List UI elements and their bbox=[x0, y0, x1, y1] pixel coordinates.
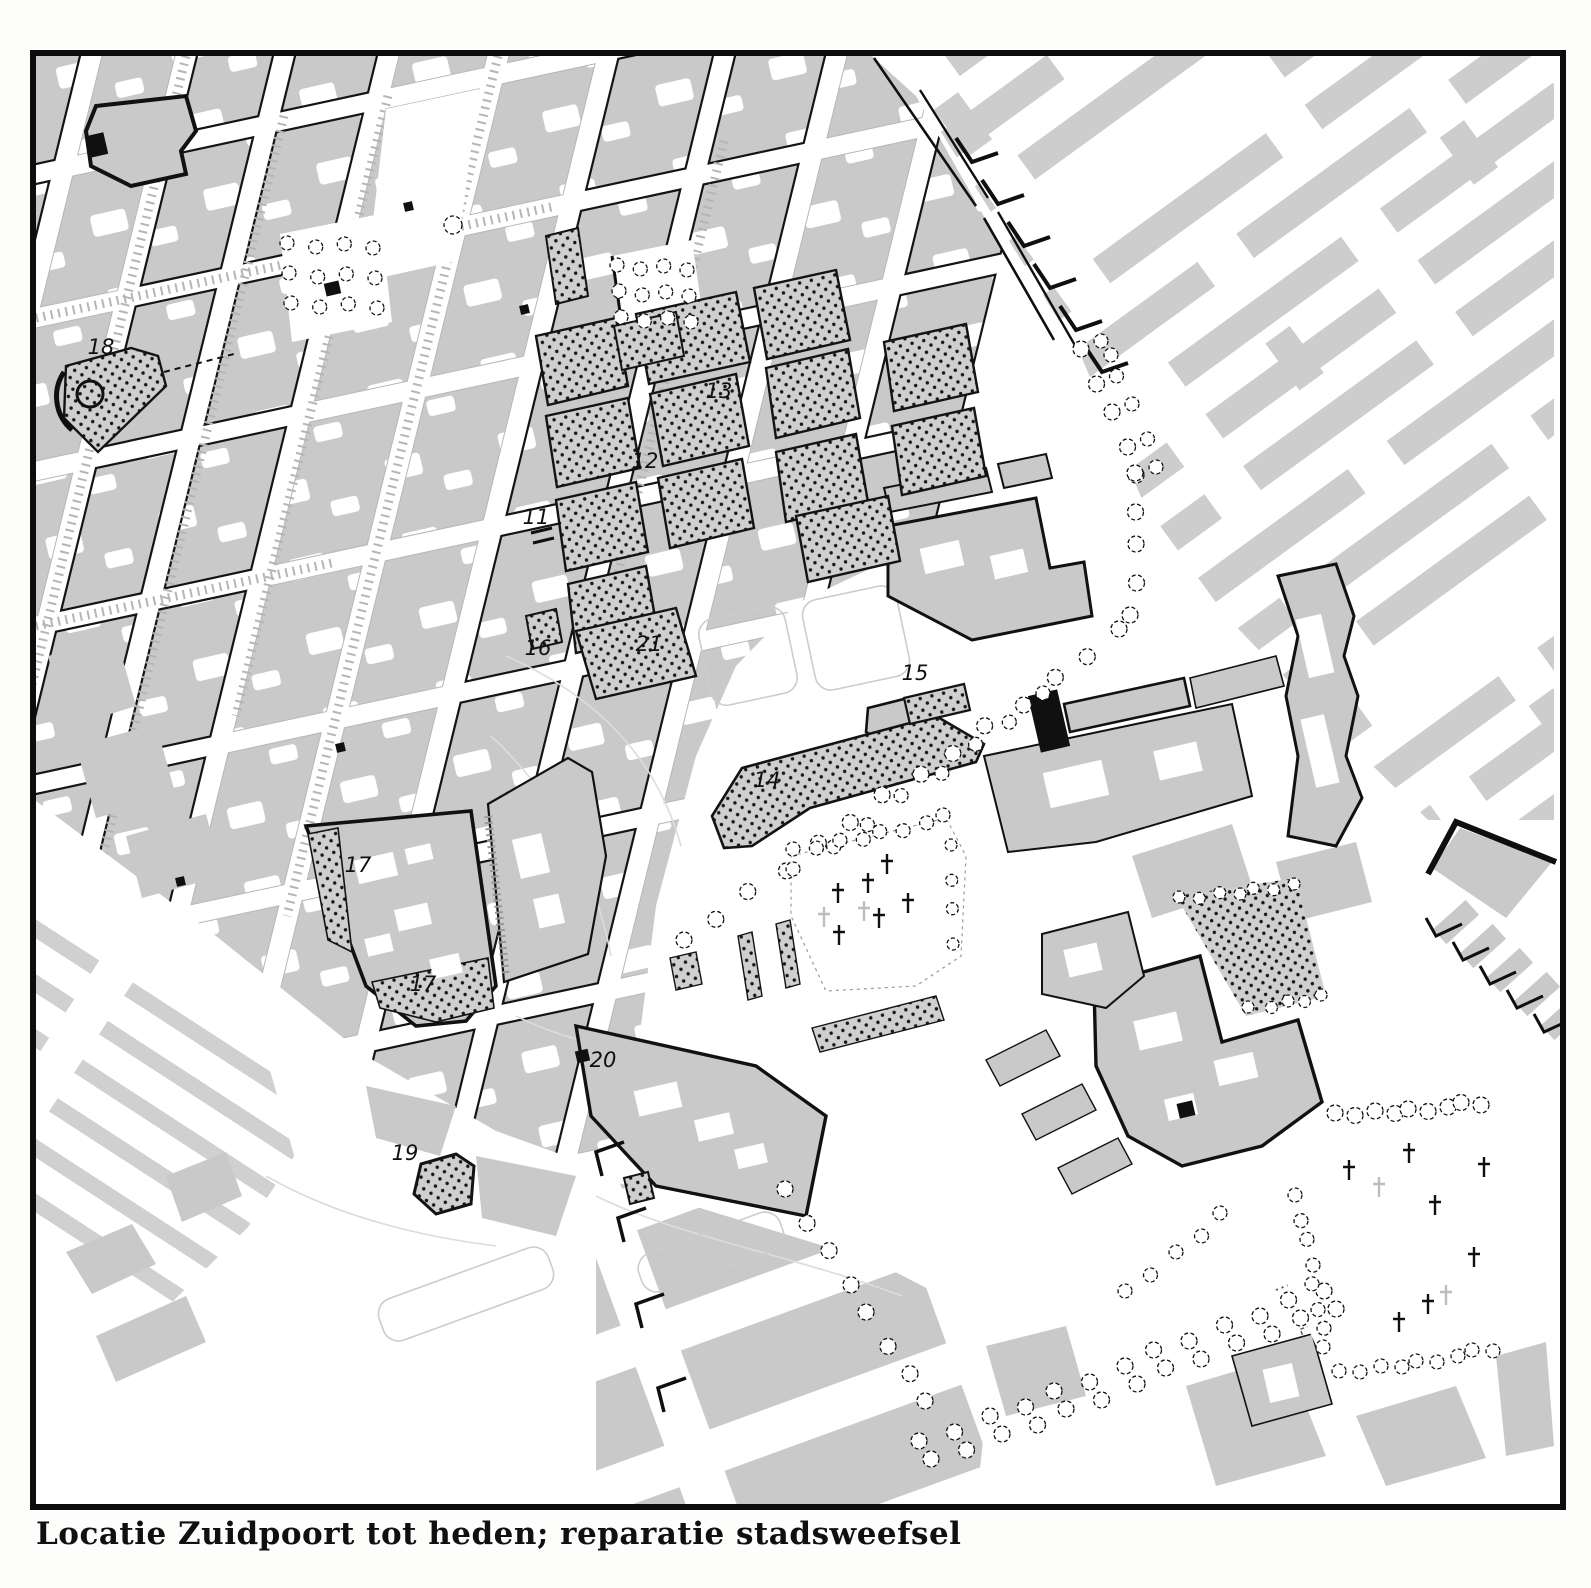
tree bbox=[945, 839, 957, 851]
tree bbox=[1453, 1095, 1469, 1111]
tree bbox=[786, 842, 800, 856]
tree bbox=[856, 832, 870, 846]
tree bbox=[1281, 1292, 1297, 1308]
building bbox=[1496, 1342, 1554, 1456]
tree bbox=[860, 818, 874, 832]
tree bbox=[1117, 1358, 1133, 1374]
tree bbox=[1217, 1317, 1233, 1333]
complex bbox=[1278, 564, 1362, 846]
tree bbox=[1129, 1376, 1145, 1392]
tree bbox=[1473, 1097, 1489, 1113]
tree bbox=[1264, 1326, 1280, 1342]
tree bbox=[1229, 1335, 1245, 1351]
tree bbox=[1420, 1104, 1436, 1120]
tree bbox=[920, 816, 934, 830]
tree bbox=[311, 270, 325, 284]
tree bbox=[633, 262, 647, 276]
tree bbox=[947, 1424, 963, 1440]
tree bbox=[994, 1426, 1010, 1442]
tree bbox=[1252, 1308, 1268, 1324]
tree bbox=[313, 300, 327, 314]
tree bbox=[337, 237, 351, 251]
tree bbox=[740, 884, 756, 900]
tree bbox=[676, 932, 692, 948]
tree bbox=[1122, 607, 1138, 623]
map-number-label: 13 bbox=[706, 379, 733, 403]
tree bbox=[1104, 348, 1118, 362]
tree bbox=[799, 1215, 815, 1231]
map-number-label: 19 bbox=[392, 1141, 419, 1165]
tree bbox=[1305, 1277, 1319, 1291]
tree bbox=[1234, 888, 1246, 900]
tree bbox=[1046, 1383, 1062, 1399]
tree bbox=[1002, 715, 1016, 729]
tree bbox=[1193, 1351, 1209, 1367]
tree bbox=[341, 297, 355, 311]
tree bbox=[1300, 1232, 1314, 1246]
tree bbox=[936, 808, 950, 822]
tree bbox=[661, 311, 675, 325]
tree bbox=[1144, 1268, 1158, 1282]
tree bbox=[1149, 460, 1163, 474]
tree bbox=[1213, 1206, 1227, 1220]
tree bbox=[1465, 1343, 1479, 1357]
tree bbox=[1181, 1333, 1197, 1349]
tree bbox=[969, 737, 983, 751]
tree bbox=[1110, 369, 1124, 383]
tree bbox=[1409, 1354, 1423, 1368]
tree bbox=[1047, 669, 1063, 685]
tree bbox=[1282, 995, 1294, 1007]
tree bbox=[1073, 341, 1089, 357]
tree bbox=[1293, 1310, 1309, 1326]
tree bbox=[946, 874, 958, 886]
tree bbox=[282, 266, 296, 280]
tree bbox=[1247, 882, 1259, 894]
tree bbox=[284, 296, 298, 310]
tree bbox=[1127, 465, 1143, 481]
tree bbox=[947, 938, 959, 950]
tree bbox=[946, 903, 958, 915]
tree bbox=[309, 240, 323, 254]
tree bbox=[1347, 1108, 1363, 1124]
tree bbox=[1374, 1359, 1388, 1373]
tree bbox=[339, 267, 353, 281]
tree bbox=[894, 789, 908, 803]
tree bbox=[935, 766, 949, 780]
tree bbox=[1128, 536, 1144, 552]
tree bbox=[1395, 1360, 1409, 1374]
map-number-label: 17 bbox=[345, 853, 372, 877]
tree bbox=[1242, 1001, 1254, 1013]
tree bbox=[874, 787, 890, 803]
tree bbox=[610, 258, 624, 272]
tree bbox=[945, 746, 961, 762]
tree bbox=[682, 289, 696, 303]
tree bbox=[1306, 1258, 1320, 1272]
tree bbox=[1016, 697, 1032, 713]
tree bbox=[657, 259, 671, 273]
tree bbox=[1451, 1349, 1465, 1363]
tree bbox=[786, 862, 800, 876]
tree bbox=[913, 766, 929, 782]
tree bbox=[1288, 1188, 1302, 1202]
tree bbox=[1141, 432, 1155, 446]
tree bbox=[1128, 504, 1144, 520]
city-map: 111213141516171718192021 bbox=[36, 56, 1560, 1504]
tree bbox=[917, 1393, 933, 1409]
tree bbox=[1316, 1340, 1330, 1354]
tree bbox=[1129, 575, 1145, 591]
tree bbox=[1311, 1303, 1325, 1317]
tree bbox=[843, 1277, 859, 1293]
tree bbox=[1111, 621, 1127, 637]
tree bbox=[1195, 1229, 1209, 1243]
tree bbox=[833, 833, 847, 847]
tree bbox=[896, 824, 910, 838]
scanned-page: 111213141516171718192021 Locatie Zuidpoo… bbox=[0, 0, 1591, 1588]
map-number-label: 20 bbox=[590, 1048, 617, 1072]
tree bbox=[977, 718, 993, 734]
tree bbox=[1288, 878, 1300, 890]
tree bbox=[1294, 1214, 1308, 1228]
tree bbox=[1118, 1284, 1132, 1298]
map-number-label: 16 bbox=[525, 636, 552, 660]
tree bbox=[366, 241, 380, 255]
tree bbox=[1094, 334, 1108, 348]
tree bbox=[821, 1243, 837, 1259]
tree bbox=[959, 1442, 975, 1458]
tree bbox=[1367, 1103, 1383, 1119]
tree bbox=[1030, 1417, 1046, 1433]
tree bbox=[1036, 686, 1050, 700]
tree bbox=[1079, 649, 1095, 665]
tree bbox=[612, 284, 626, 298]
tree bbox=[809, 841, 823, 855]
map-number-label: 15 bbox=[902, 661, 929, 685]
tree bbox=[1173, 891, 1185, 903]
tree bbox=[1120, 439, 1136, 455]
tree bbox=[982, 1408, 998, 1424]
tree bbox=[923, 1451, 939, 1467]
map-number-label: 14 bbox=[754, 768, 781, 792]
tree bbox=[684, 315, 698, 329]
tree bbox=[614, 310, 628, 324]
tree bbox=[1328, 1301, 1344, 1317]
tree bbox=[880, 1338, 896, 1354]
tree bbox=[1266, 1002, 1278, 1014]
tree bbox=[1327, 1105, 1343, 1121]
tree bbox=[659, 285, 673, 299]
tree bbox=[1089, 376, 1105, 392]
tree bbox=[1299, 996, 1311, 1008]
tree bbox=[370, 301, 384, 315]
tree bbox=[911, 1433, 927, 1449]
tree bbox=[873, 825, 887, 839]
intervention-block bbox=[670, 952, 702, 990]
tree bbox=[708, 911, 724, 927]
tree bbox=[1193, 892, 1205, 904]
map-number-label: 11 bbox=[523, 505, 550, 529]
tree bbox=[1104, 404, 1120, 420]
tree bbox=[1058, 1401, 1074, 1417]
tree bbox=[1094, 1392, 1110, 1408]
tree bbox=[1268, 884, 1280, 896]
tree bbox=[842, 815, 858, 831]
map-number-label: 17 bbox=[410, 972, 437, 996]
tree bbox=[444, 216, 462, 234]
tree bbox=[1332, 1364, 1346, 1378]
tree bbox=[777, 1181, 793, 1197]
tree bbox=[858, 1304, 874, 1320]
tree bbox=[1400, 1101, 1416, 1117]
tree bbox=[1430, 1355, 1444, 1369]
tree bbox=[1158, 1360, 1174, 1376]
map-frame: 111213141516171718192021 bbox=[30, 50, 1566, 1510]
map-number-label: 18 bbox=[88, 335, 115, 359]
tree bbox=[1169, 1245, 1183, 1259]
tree bbox=[1082, 1374, 1098, 1390]
tree bbox=[1018, 1399, 1034, 1415]
tree bbox=[368, 271, 382, 285]
tree bbox=[1125, 397, 1139, 411]
tree bbox=[1353, 1365, 1367, 1379]
map-number-label: 21 bbox=[636, 632, 663, 656]
intervention-block bbox=[624, 1172, 654, 1204]
tree bbox=[1146, 1342, 1162, 1358]
tree bbox=[1214, 887, 1226, 899]
tree bbox=[1315, 989, 1327, 1001]
tree bbox=[635, 288, 649, 302]
tree bbox=[1486, 1344, 1500, 1358]
tree bbox=[902, 1366, 918, 1382]
tree bbox=[1317, 1321, 1331, 1335]
figure-caption: Locatie Zuidpoort tot heden; reparatie s… bbox=[36, 1516, 1556, 1552]
tree bbox=[637, 314, 651, 328]
tree bbox=[680, 263, 694, 277]
map-number-label: 12 bbox=[632, 449, 659, 473]
tree bbox=[280, 236, 294, 250]
